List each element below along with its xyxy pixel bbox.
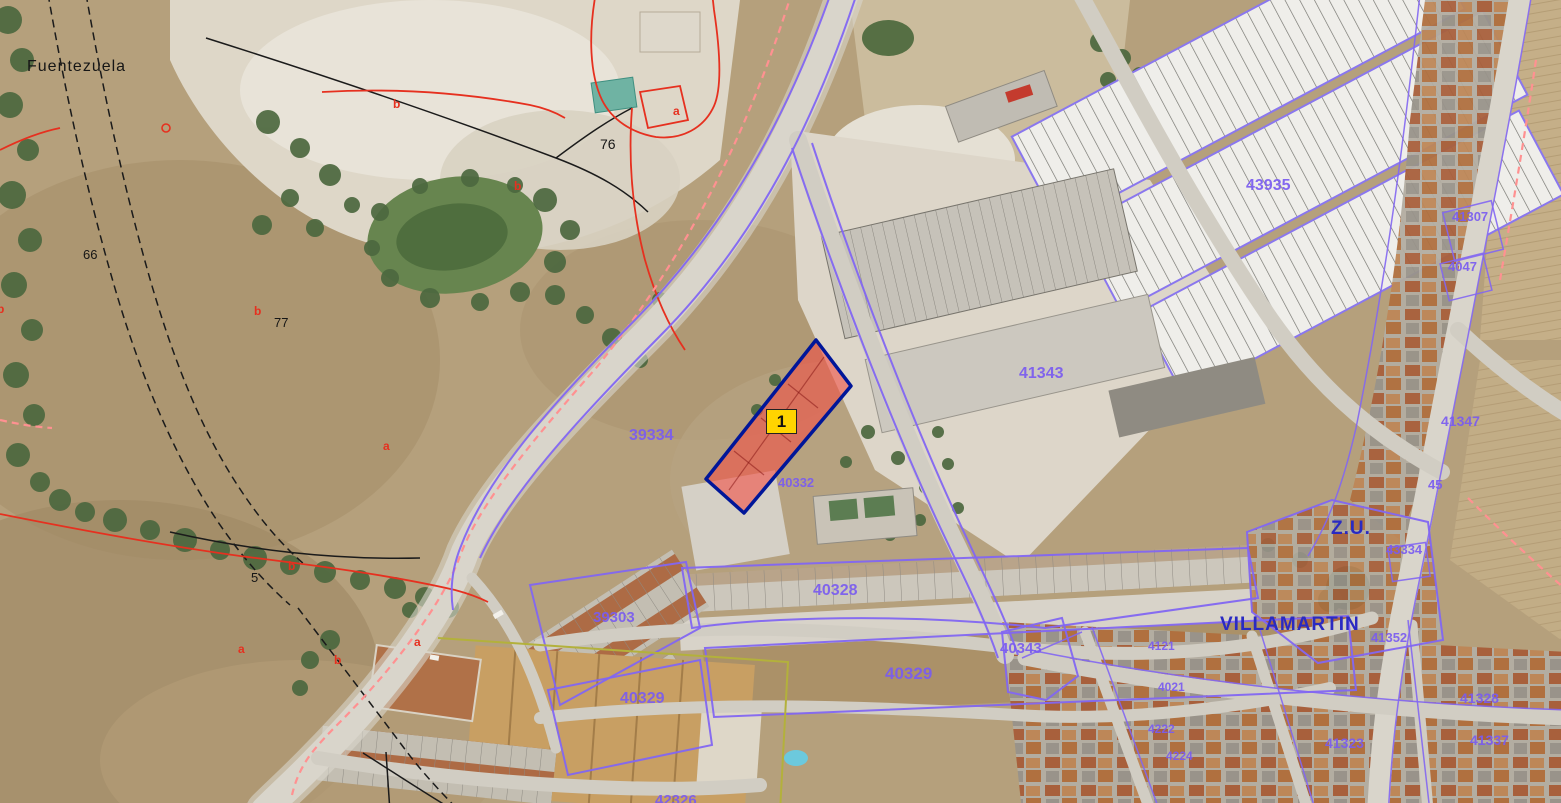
subparcel-letter-b: b [0, 303, 4, 315]
cadastral-map-canvas[interactable]: Fuentezuela 66 77 76 5 a b b b b a b a b… [0, 0, 1561, 803]
parcel-label-40329-main: 40329 [885, 665, 932, 682]
parcel-label-39303: 39303 [593, 610, 635, 625]
parcel-label-45: 45 [1428, 478, 1442, 491]
subparcel-letter-a: a [673, 105, 680, 117]
parcel-label-66: 66 [83, 248, 97, 261]
parcel-label-76: 76 [600, 137, 616, 151]
parcel-label-43334: 43334 [1386, 543, 1422, 556]
selected-parcel-marker[interactable]: 1 [766, 409, 797, 434]
subparcel-letter-b: b [334, 654, 341, 666]
parcel-label-5: 5 [251, 571, 258, 584]
parcel-label-4047: 4047 [1448, 260, 1477, 273]
parcel-label-77: 77 [274, 316, 288, 329]
parcel-label-41337: 41337 [1470, 733, 1509, 747]
parcel-label-41307: 41307 [1452, 210, 1488, 223]
subparcel-letter-a: a [383, 440, 390, 452]
parcel-label-43935: 43935 [1246, 178, 1291, 194]
subparcel-letter-b: b [254, 305, 261, 317]
parcel-label-40332: 40332 [778, 476, 814, 489]
parcel-label-40329-west: 40329 [620, 691, 665, 707]
subparcel-letter-b: b [514, 180, 521, 192]
parcel-label-4121: 4121 [1148, 640, 1175, 652]
subparcel-letter-b: b [393, 98, 400, 110]
place-label-fuentezuela: Fuentezuela [27, 59, 126, 75]
parcel-label-40343: 40343 [1000, 641, 1042, 656]
parcel-label-39334: 39334 [629, 428, 674, 444]
parcel-label-4222: 4222 [1148, 723, 1175, 735]
aerial-map-graphics [0, 0, 1561, 803]
zone-label-zu: Z.U. [1331, 519, 1371, 538]
parcel-label-41352: 41352 [1371, 631, 1407, 644]
parcel-label-42326: 42326 [655, 793, 697, 803]
parcel-label-41328: 41328 [1460, 691, 1499, 705]
parcel-label-4021: 4021 [1158, 681, 1185, 693]
place-label-villamartin: VILLAMARTIN [1220, 615, 1360, 634]
parcel-label-41347: 41347 [1441, 414, 1480, 428]
subparcel-letter-a: a [238, 643, 245, 655]
subparcel-letter-a: a [414, 636, 421, 648]
parcel-label-41323: 41323 [1325, 736, 1364, 750]
subparcel-letter-b: b [288, 560, 295, 572]
parcel-label-40328: 40328 [813, 583, 858, 599]
parcel-label-4224: 4224 [1166, 750, 1193, 762]
parcel-label-41343: 41343 [1019, 366, 1064, 382]
